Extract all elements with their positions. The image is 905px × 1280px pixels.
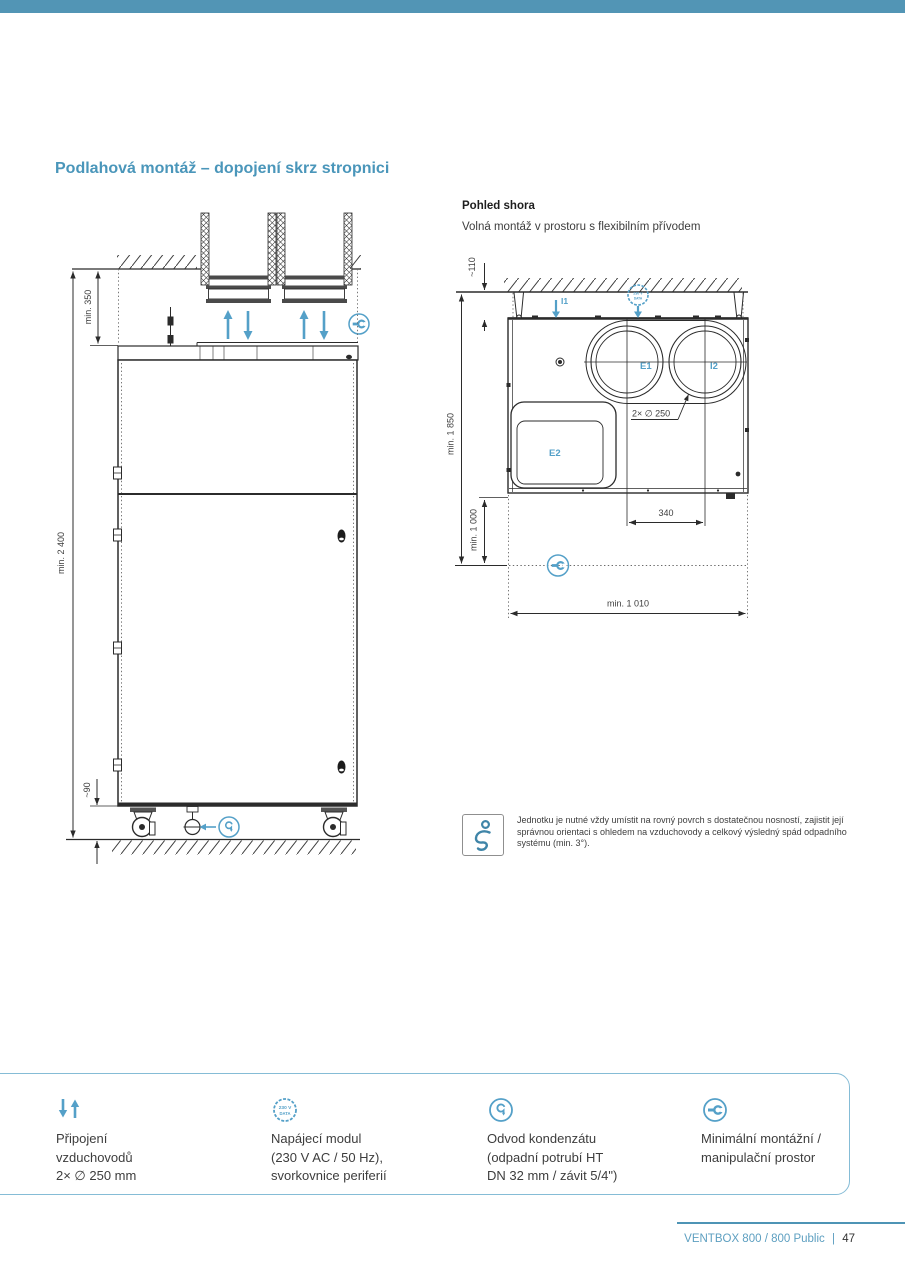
sensor-mast [168,307,174,346]
legend-line: manipulační prostor [701,1149,901,1168]
info-icon-box [462,814,504,856]
wall-section [456,278,748,292]
legend-line: vzduchovodů [56,1149,256,1168]
manual-page: Podlahová montáž – dopojení skrz stropni… [0,0,905,1280]
duct-pair [201,213,352,303]
dim-front-clearance: min. 1 000 [469,509,479,551]
condensate-drain-icon [200,817,240,837]
legend-item-service-space: Minimální montážní / manipulační prostor [701,1096,901,1167]
floor-section [66,840,360,855]
unit-top-view [507,316,750,527]
legend-line: (odpadní potrubí HT [487,1149,687,1168]
info-person-icon [468,818,498,852]
dim-height-total: min. 1 850 [446,413,456,455]
top-view-drawing: E1 I2 E2 I1 230 V DATA 2× ∅ 250 [446,257,750,618]
svg-text:230 V: 230 V [633,291,643,295]
unit-top-plate [90,343,358,361]
service-space-icon [701,1096,901,1126]
dim-width-total: min. 1 010 [607,599,649,609]
inlet-i1-arrow: I1 [552,296,568,318]
ceiling-section [72,255,361,269]
legend-box: Připojení vzduchovodů 2× ∅ 250 mm 230 V … [0,1073,850,1195]
legend-line: Připojení [56,1130,256,1149]
dim-wall-gap: ~110 [467,257,477,277]
legend-item-condensate: Odvod kondenzátu (odpadní potrubí HT DN … [487,1096,687,1186]
label-e2: E2 [549,448,561,459]
footer-separator: | [832,1233,835,1245]
dim-total-height: min. 2 400 [56,532,66,574]
legend-line: Napájecí modul [271,1130,471,1149]
dim-base-height: ~90 [82,782,92,797]
placement-note-text: Jednotku je nutné vždy umístit na rovný … [517,815,858,850]
legend-line: 2× ∅ 250 mm [56,1167,256,1186]
caster-wheel-right [321,808,347,837]
condensate-drain-icon [487,1096,687,1126]
dim-top-clearance: min. 350 [83,290,93,325]
svg-text:DATA: DATA [279,1111,290,1116]
legend-line: DN 32 mm / závit 5/4") [487,1167,687,1186]
legend-line: (230 V AC / 50 Hz), [271,1149,471,1168]
unit-cabinet [114,360,358,807]
front-view-drawing: min. 350 min. 2 400 ~90 [56,213,369,864]
service-space-icon [349,314,369,334]
label-i1: I1 [561,296,568,306]
svg-text:2× ∅ 250: 2× ∅ 250 [632,409,670,419]
footer-rule [677,1222,905,1224]
label-e1: E1 [640,361,652,372]
footer: VENTBOX 800 / 800 Public | 47 [560,1233,855,1245]
front-view-dimensions: min. 350 min. 2 400 ~90 [56,272,118,865]
service-space-icon-top-view [548,555,569,576]
legend-line: Minimální montážní / [701,1130,901,1149]
legend-item-airflow: Připojení vzduchovodů 2× ∅ 250 mm [56,1096,256,1186]
footer-page-number: 47 [842,1233,855,1245]
caster-wheel-left [130,808,156,837]
label-i2: I2 [710,361,718,372]
airflow-arrows-icon [56,1096,256,1126]
footer-brand: VENTBOX 800 / 800 Public [684,1233,825,1245]
svg-text:DATA: DATA [634,296,643,300]
condensate-drain-outlet [184,807,202,835]
dim-duct-spacing: 340 [658,508,673,518]
legend-line: Odvod kondenzátu [487,1130,687,1149]
legend-item-power: 230 V DATA Napájecí modul (230 V AC / 50… [271,1096,471,1186]
airflow-arrows-icon [224,310,329,340]
legend-line: svorkovnice periferií [271,1167,471,1186]
power-data-icon: 230 V DATA [271,1096,471,1126]
